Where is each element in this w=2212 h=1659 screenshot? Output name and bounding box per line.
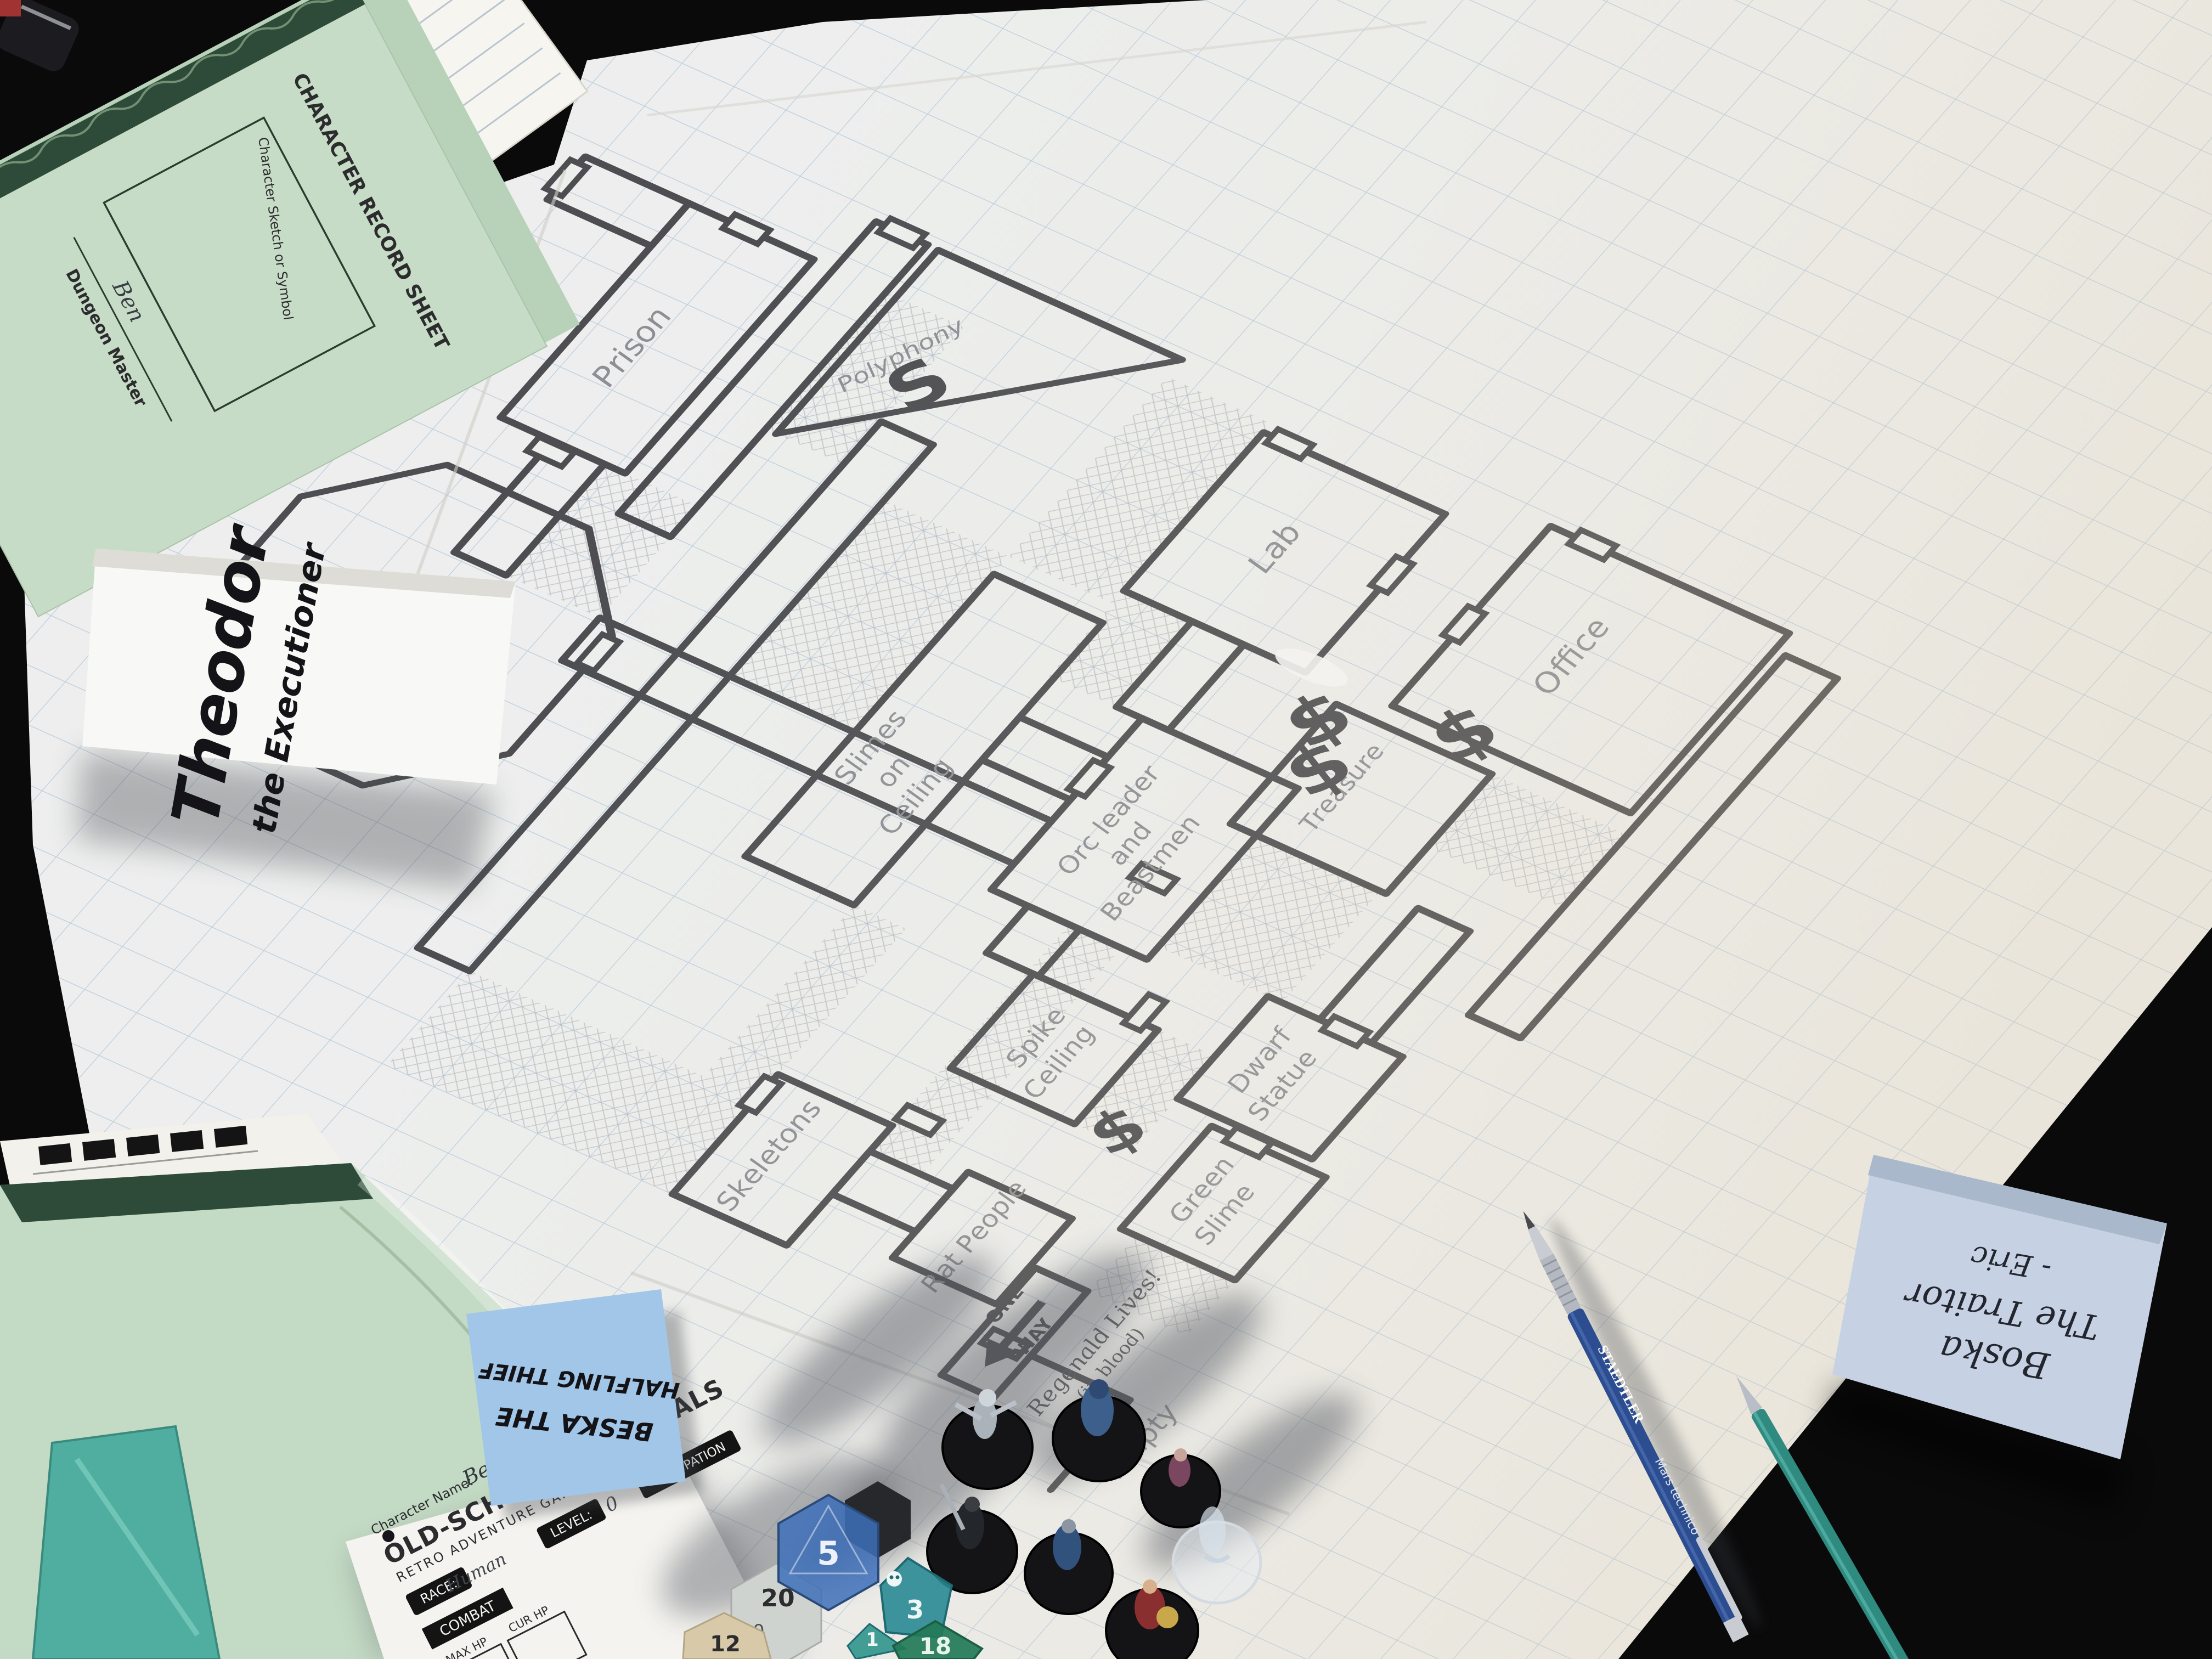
die-green-18: 18 bbox=[919, 1633, 951, 1659]
die-teal-1: 1 bbox=[866, 1629, 879, 1651]
red-paper-corner bbox=[0, 0, 21, 16]
die-blue-5: 5 bbox=[817, 1534, 840, 1573]
skull-icon bbox=[887, 1571, 902, 1587]
die-teal-3: 3 bbox=[906, 1595, 924, 1624]
photo-tabletop-rpg-session: Prison Polyphony Lab Office Scary Druid … bbox=[0, 0, 2212, 1659]
sticky-note-beska: BESKA THE HALFLING THIEF bbox=[466, 1289, 702, 1520]
die-tan-12: 12 bbox=[710, 1632, 741, 1657]
